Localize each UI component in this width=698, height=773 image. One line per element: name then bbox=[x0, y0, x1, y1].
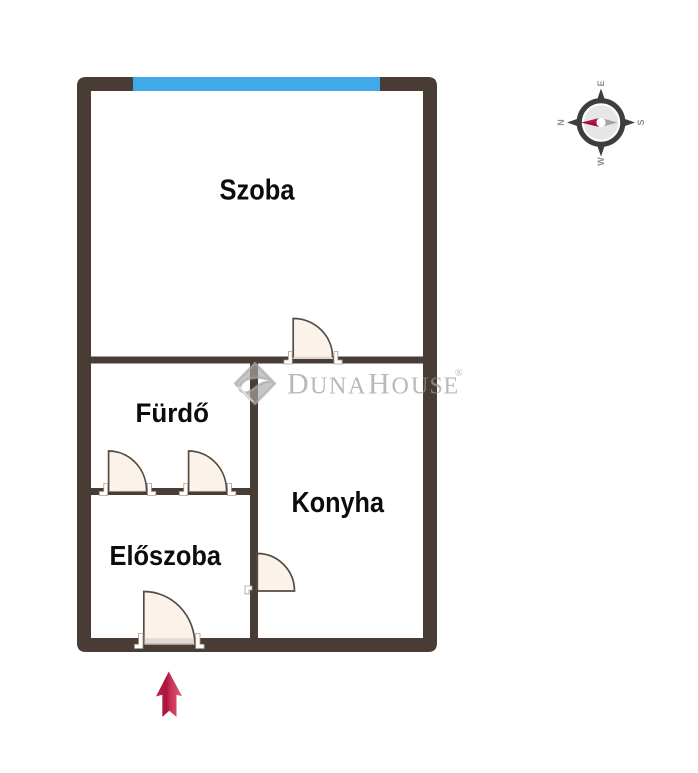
svg-text:O: O bbox=[392, 374, 409, 400]
svg-text:U: U bbox=[411, 374, 428, 400]
svg-text:A: A bbox=[348, 374, 366, 400]
svg-text:Fürdő: Fürdő bbox=[136, 398, 210, 428]
svg-text:S: S bbox=[636, 119, 646, 125]
svg-text:H: H bbox=[368, 368, 390, 401]
svg-text:Konyha: Konyha bbox=[292, 487, 385, 519]
svg-text:N: N bbox=[329, 374, 346, 400]
svg-text:Előszoba: Előszoba bbox=[110, 540, 222, 571]
svg-text:U: U bbox=[310, 374, 327, 400]
svg-text:®: ® bbox=[455, 368, 463, 379]
svg-text:E: E bbox=[596, 80, 606, 86]
svg-text:N: N bbox=[556, 119, 566, 126]
svg-text:W: W bbox=[596, 157, 606, 166]
svg-text:Szoba: Szoba bbox=[220, 175, 296, 207]
svg-text:S: S bbox=[430, 374, 443, 400]
svg-text:D: D bbox=[287, 368, 309, 401]
